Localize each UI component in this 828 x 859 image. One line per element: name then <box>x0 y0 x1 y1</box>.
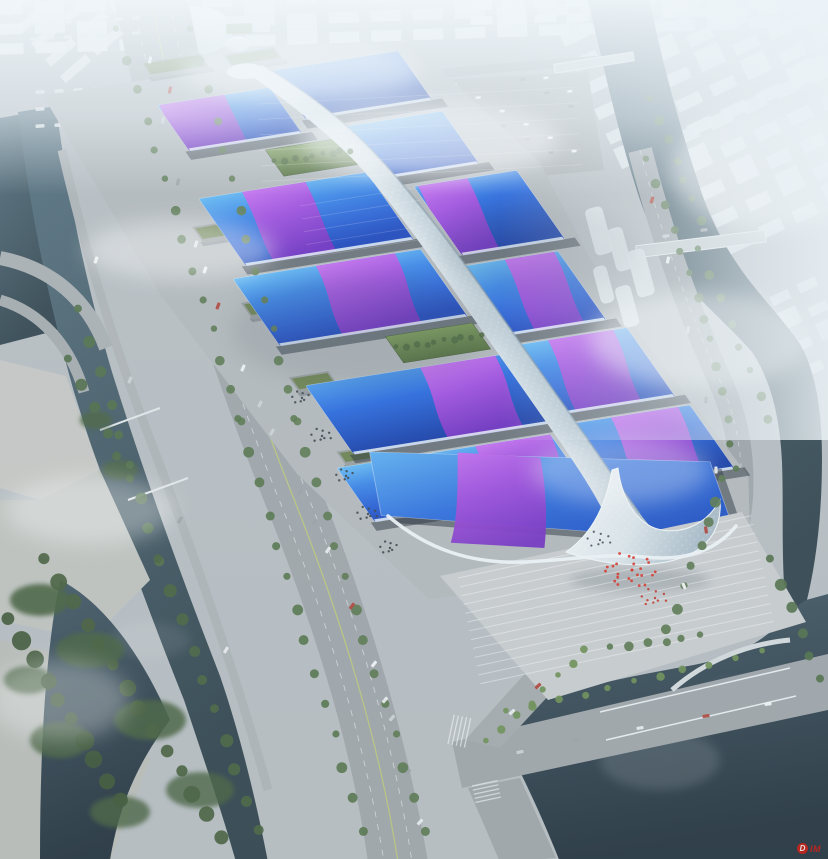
aerial-rendering-canvas: D IM <box>0 0 828 859</box>
exhibition-center-aerial-scene <box>0 0 828 859</box>
atmosphere-haze <box>0 0 828 859</box>
